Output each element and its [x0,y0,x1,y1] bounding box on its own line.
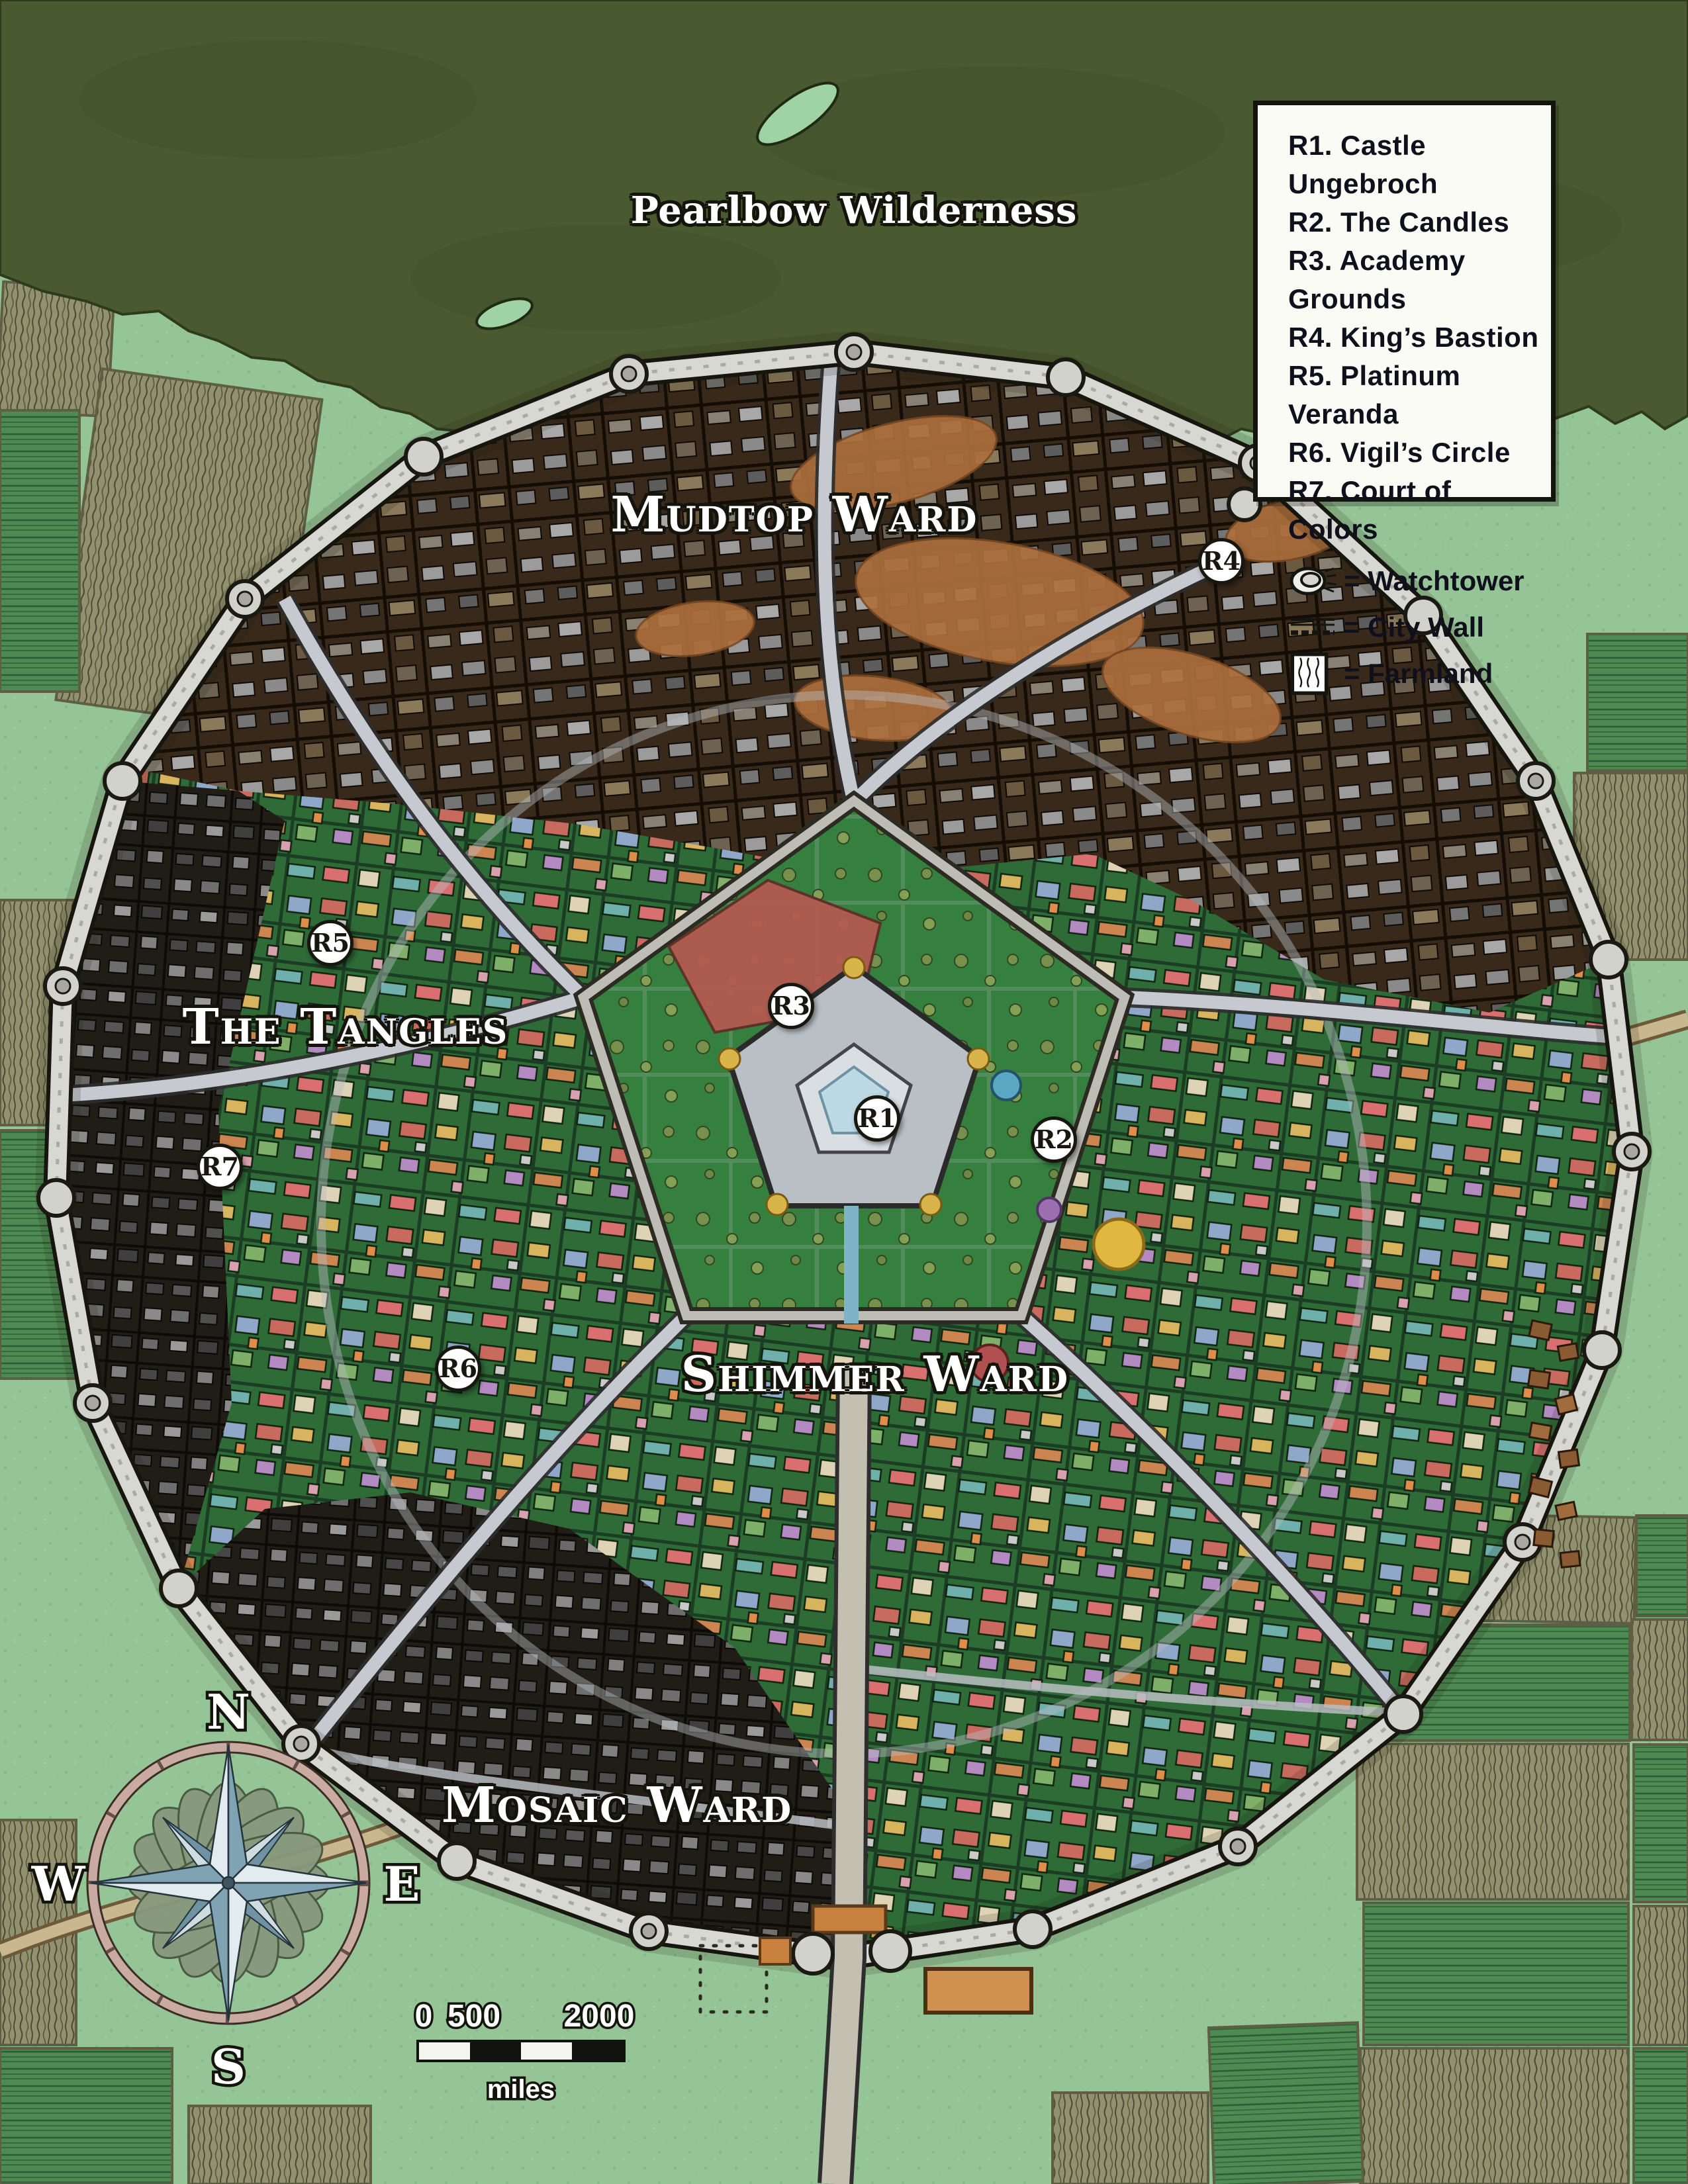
poi-marker: R4 [1198,538,1244,584]
wilderness-label: Pearlbow Wilderness [631,189,1078,232]
legend-symbol-label: = Farmland [1344,658,1493,690]
city-wall-icon [1288,614,1344,641]
legend-symbol-label: = City Wall [1344,612,1484,643]
ward-label: Mudtop Ward [611,486,978,543]
scale-tick-mid: 500 [447,1999,500,2034]
ward-label: Shimmer Ward [681,1346,1069,1403]
legend-entry: R1. Castle Ungebroch [1288,126,1539,203]
legend-entry: R7. Court of Colors [1288,472,1539,549]
poi-marker: R2 [1031,1116,1077,1163]
compass-west-label: W [31,1856,86,1912]
poi-marker: R3 [768,983,814,1029]
poi-marker-label: R7 [201,1154,239,1179]
legend-symbol-watchtower: = Watchtower [1288,563,1539,600]
poi-marker-label: R5 [311,931,350,956]
legend-entry: R2. The Candles [1288,203,1539,242]
legend-entries: R1. Castle Ungebroch R2. The Candles R3.… [1288,126,1539,548]
poi-marker: R6 [435,1345,481,1392]
compass-east-label: E [384,1856,420,1912]
ward-label: The Tangles [183,999,509,1056]
poi-marker-label: R6 [439,1356,477,1381]
compass-south-label: S [211,2038,246,2095]
poi-marker-label: R3 [772,993,810,1019]
farmland-icon [1288,652,1344,696]
market-stall [925,1969,1031,2013]
scale-tick-start: 0 [415,1999,433,2034]
poi-marker: R5 [307,920,353,966]
poi-marker: R1 [854,1095,900,1142]
legend-symbol-city-wall: = City Wall [1288,609,1539,646]
compass-north-label: N [207,1684,250,1740]
poi-marker: R7 [197,1144,243,1190]
legend-entry: R3. Academy Grounds [1288,242,1539,318]
legend-panel: R1. Castle Ungebroch R2. The Candles R3.… [1253,101,1556,502]
fantasy-city-map: N E S W 0 500 2000 miles Pearlbow Wilder… [0,0,1688,2184]
legend-entry: R6. Vigil’s Circle [1288,433,1539,472]
legend-entry: R5. Platinum Veranda [1288,357,1539,433]
scale-tick-end: 2000 [564,1999,635,2034]
legend-symbol-label: = Watchtower [1344,565,1524,597]
watchtower-icon [1288,563,1344,600]
poi-marker-label: R4 [1202,549,1241,574]
poi-marker-label: R1 [858,1106,896,1131]
ward-label: Mosaic Ward [442,1777,792,1834]
legend-entry: R4. King’s Bastion [1288,318,1539,357]
legend-symbol-farmland: = Farmland [1288,655,1539,692]
scale-unit-label: miles [487,2075,555,2104]
poi-marker-label: R2 [1035,1127,1073,1152]
